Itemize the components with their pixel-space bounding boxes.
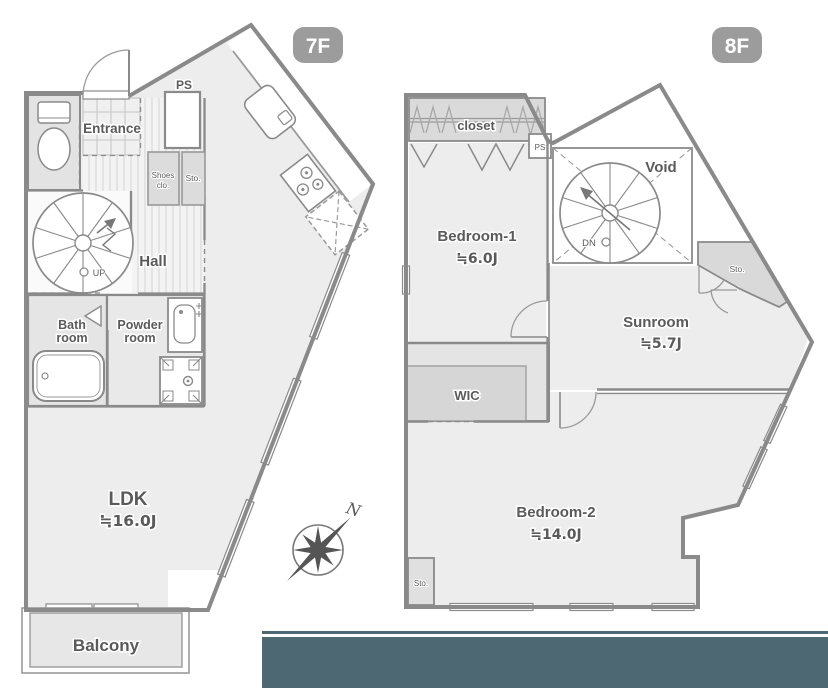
floor-8f: closet PS Bedroom-1 ≒6.0J Void DN Sto. S…: [403, 85, 813, 611]
spiral-staircase-icon-8f: [560, 163, 660, 263]
bedroom2-size-label: ≒14.0J: [530, 527, 581, 543]
floor-badge-8f: 8F: [712, 27, 762, 63]
floorplan-page: PS Entrance Shoes clo. Sto. Hall UP Bath…: [0, 0, 828, 688]
balcony-label: Balcony: [73, 636, 140, 655]
vanity-sink-icon: [168, 298, 202, 352]
bedroom2-label: Bedroom-2: [516, 504, 595, 521]
accent-bar: [262, 631, 828, 688]
storage-upper-label: Sto.: [729, 264, 744, 274]
floor-badge-7f-label: 7F: [306, 35, 331, 58]
bedroom1-label: Bedroom-1: [437, 228, 516, 245]
entrance-door-icon: [83, 50, 129, 99]
ps-shaft-7f: [165, 92, 200, 148]
ps-label-8f: PS: [535, 143, 546, 152]
ldk-label: LDK: [108, 489, 147, 510]
spiral-staircase-icon-7f: [33, 193, 133, 293]
floor-7f: PS Entrance Shoes clo. Sto. Hall UP Bath…: [22, 25, 373, 673]
washing-machine-icon: [160, 357, 202, 404]
up-label: UP: [93, 268, 106, 278]
shoes-closet-label-1: Shoes: [152, 171, 175, 180]
bathtub-icon: [33, 351, 104, 401]
entrance-label: Entrance: [83, 121, 141, 136]
wic-box: [407, 343, 549, 421]
closet-label: closet: [457, 118, 495, 133]
sunroom-size-label: ≒5.7J: [640, 336, 682, 352]
wic-label: WIC: [454, 388, 480, 403]
bedroom2-floor: [407, 392, 790, 607]
storage-label-7f: Sto.: [185, 173, 200, 183]
floor-badge-7f: 7F: [293, 27, 343, 63]
toilet-icon: [38, 102, 70, 170]
floor-badge-8f-label: 8F: [725, 35, 750, 58]
compass-north-label: N: [343, 498, 364, 521]
powder-room-label-1: Powder: [117, 318, 162, 332]
ldk-size-label: ≒16.0J: [100, 512, 157, 530]
powder-room-label-2: room: [124, 331, 155, 345]
bath-room-label-2: room: [56, 331, 87, 345]
ps-label-7f: PS: [176, 78, 192, 92]
sunroom-label: Sunroom: [623, 314, 689, 331]
storage-lower-label: Sto.: [414, 579, 428, 588]
dn-label: DN: [582, 238, 596, 249]
compass-icon: N: [287, 498, 364, 581]
void-label: Void: [645, 159, 676, 176]
floorplan-canvas: PS Entrance Shoes clo. Sto. Hall UP Bath…: [0, 0, 828, 688]
bath-room-label-1: Bath: [58, 318, 86, 332]
shoes-closet-label-2: clo.: [157, 181, 169, 190]
bedroom1-size-label: ≒6.0J: [456, 251, 498, 267]
hall-label: Hall: [139, 253, 167, 270]
